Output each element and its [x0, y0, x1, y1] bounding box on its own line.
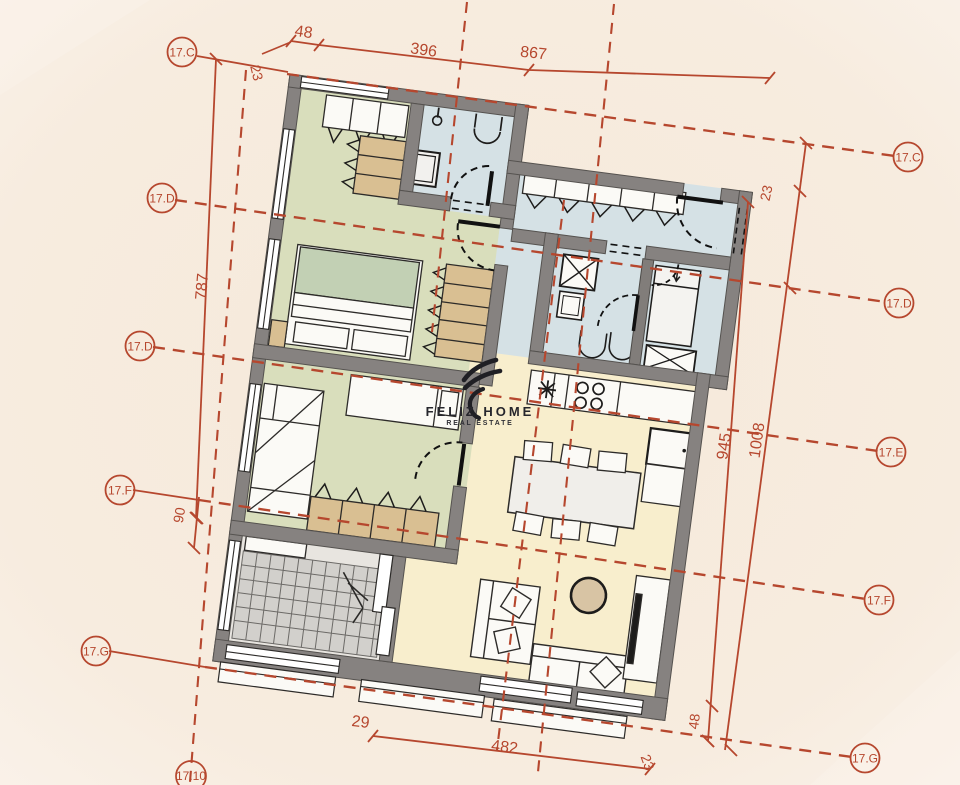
svg-text:482: 482: [490, 737, 519, 757]
svg-text:17.E: 17.E: [879, 446, 904, 460]
svg-text:867: 867: [519, 44, 547, 64]
svg-text:90: 90: [170, 506, 188, 524]
svg-text:17.D: 17.D: [127, 340, 153, 354]
svg-text:17.D: 17.D: [886, 297, 912, 311]
svg-text:29: 29: [351, 713, 371, 732]
svg-text:17.F: 17.F: [108, 484, 132, 498]
svg-text:17.10: 17.10: [176, 769, 206, 783]
svg-text:17.F: 17.F: [867, 594, 891, 608]
svg-text:17.G: 17.G: [83, 645, 109, 659]
svg-text:17.C: 17.C: [895, 151, 921, 165]
svg-text:48: 48: [294, 23, 314, 42]
svg-text:48: 48: [685, 712, 703, 730]
svg-text:REAL ESTATE: REAL ESTATE: [446, 420, 513, 427]
svg-text:17.C: 17.C: [169, 46, 195, 60]
svg-text:787: 787: [193, 272, 212, 300]
svg-text:17.D: 17.D: [149, 192, 175, 206]
svg-text:FELIZ HOME: FELIZ HOME: [426, 404, 535, 419]
svg-text:17.G: 17.G: [852, 752, 878, 766]
